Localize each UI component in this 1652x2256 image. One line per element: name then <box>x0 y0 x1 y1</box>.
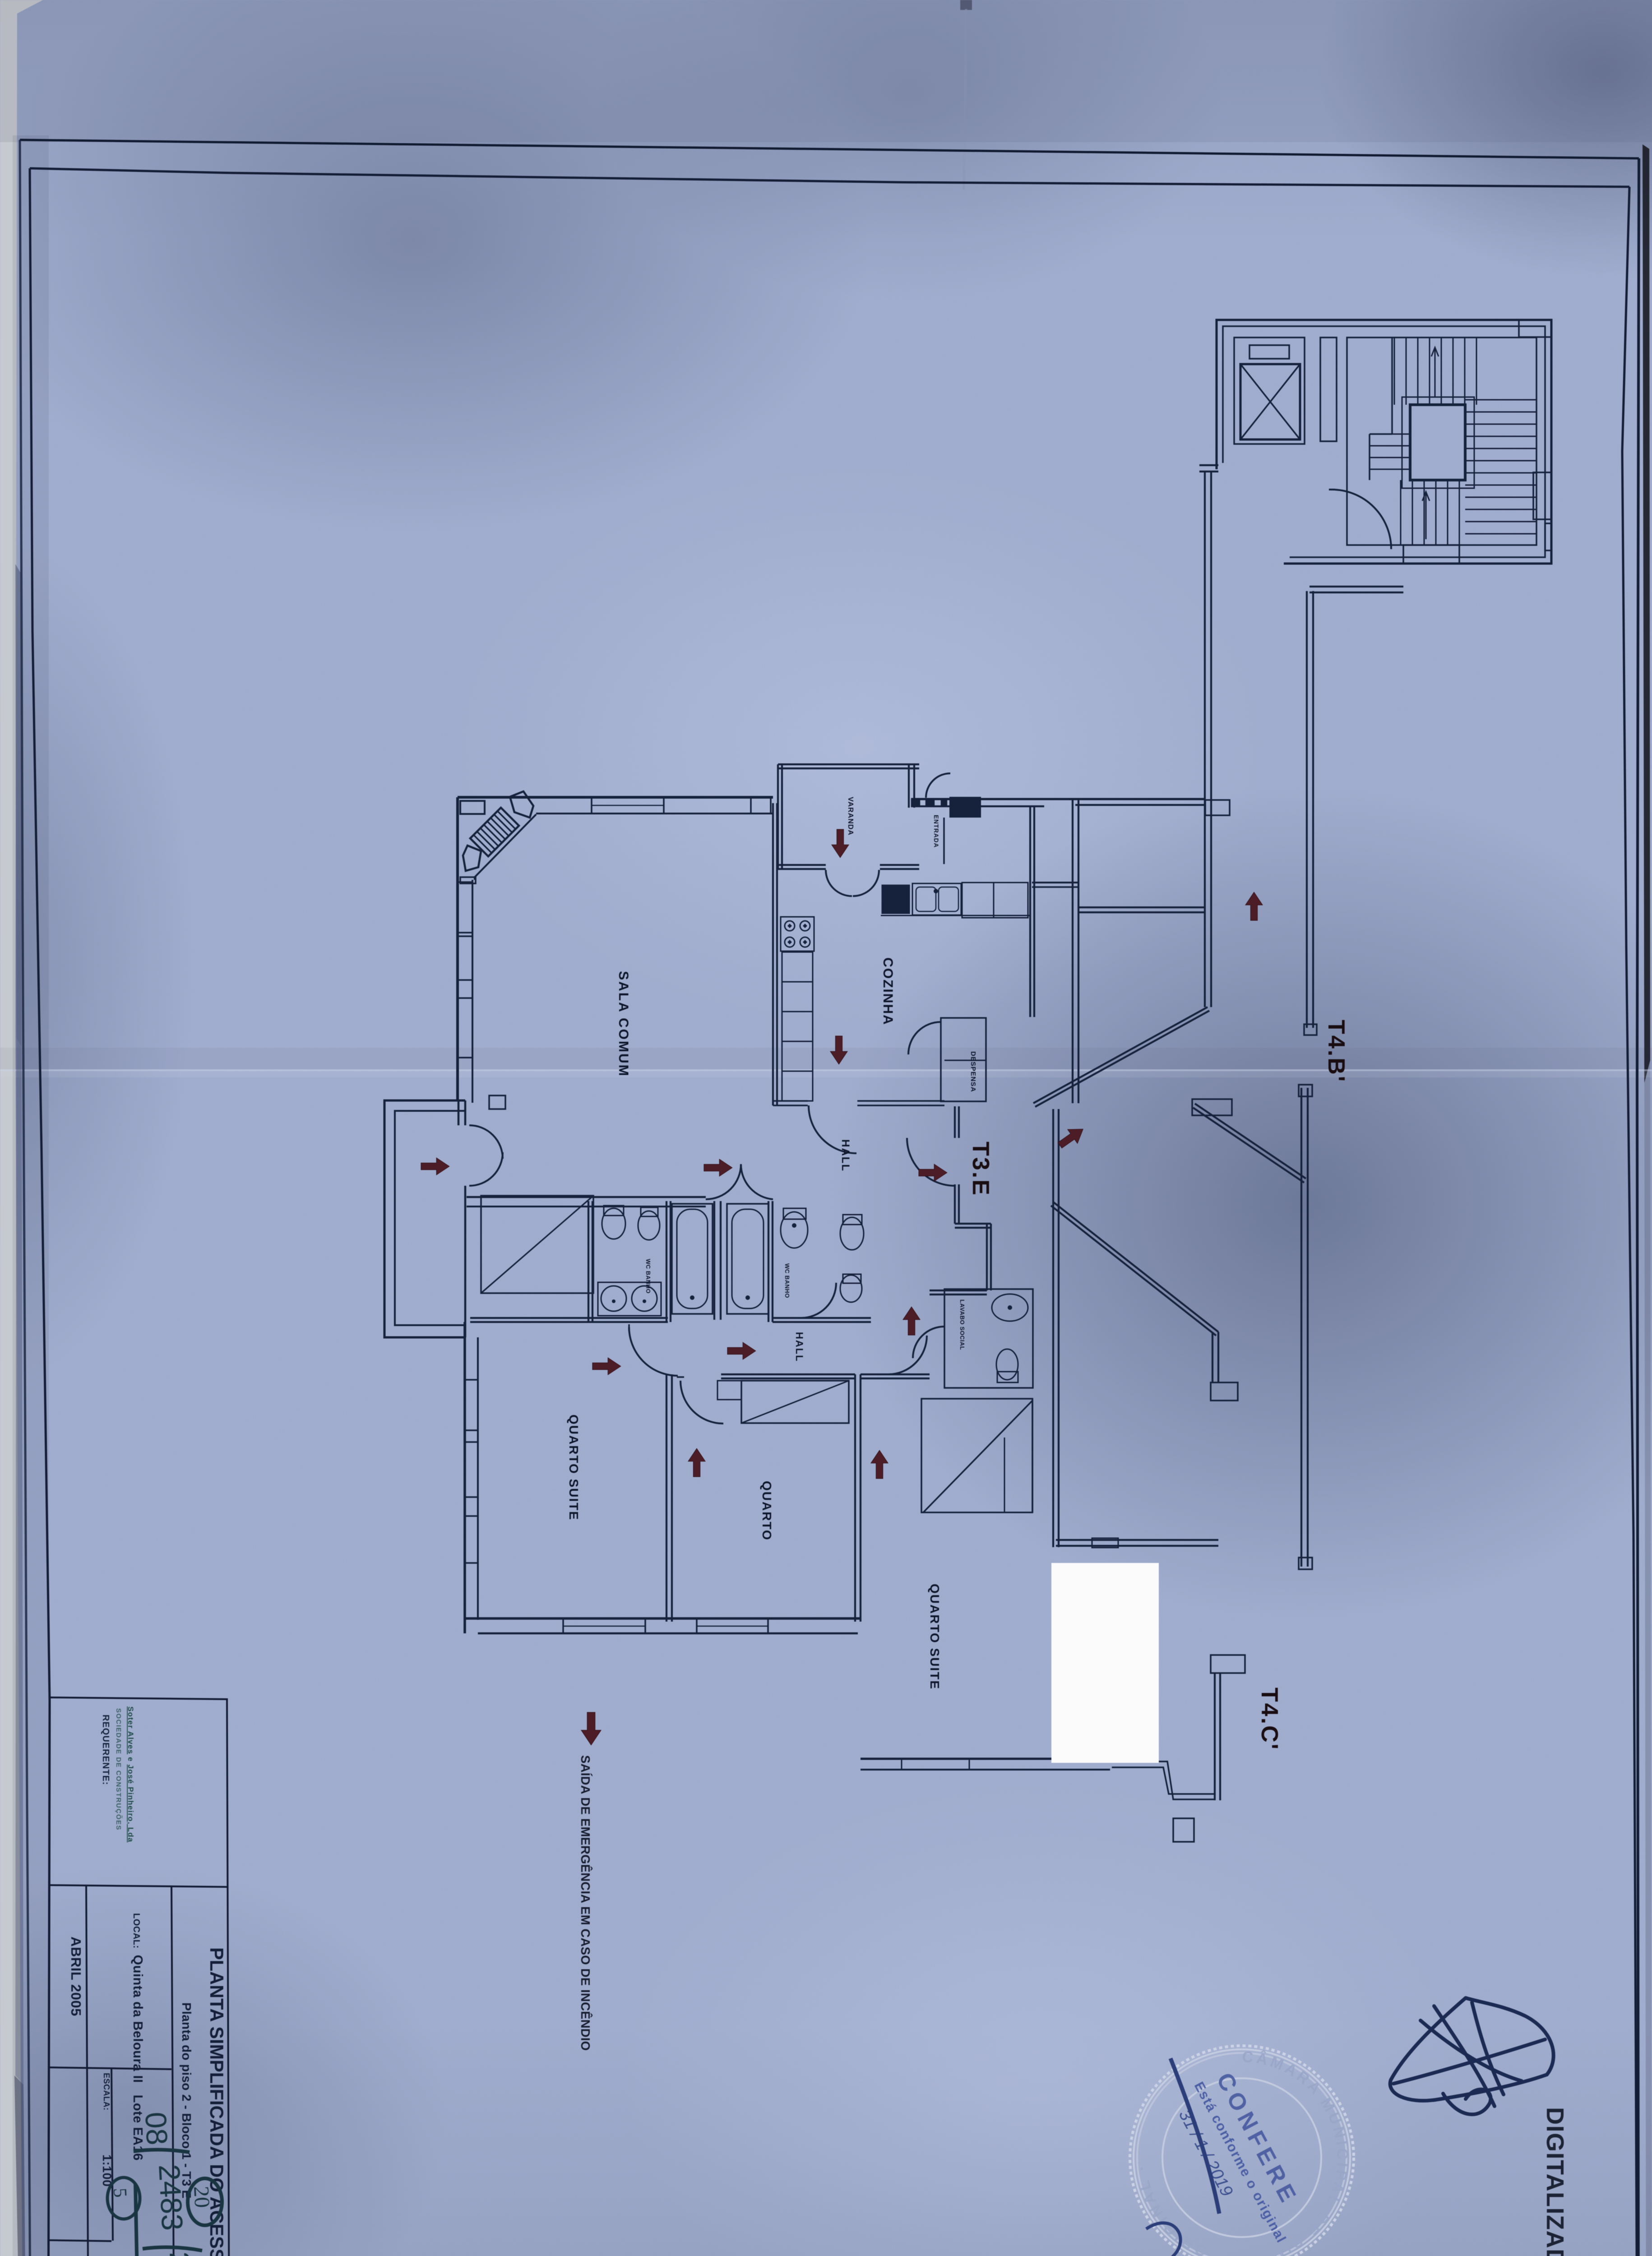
svg-text:PLANTA SIMPLIFICADA DO ACESSO: PLANTA SIMPLIFICADA DO ACESSO AO FOGO <box>206 1947 227 2256</box>
svg-text:20: 20 <box>189 2186 214 2209</box>
svg-text:QUARTO SUITE: QUARTO SUITE <box>567 1415 581 1521</box>
svg-text:DIGITALIZADO: DIGITALIZADO <box>1541 2107 1569 2256</box>
svg-text:2483: 2483 <box>153 2164 190 2231</box>
svg-text:SALA COMUM: SALA COMUM <box>616 971 631 1077</box>
svg-text:LAVABO SOCIAL: LAVABO SOCIAL <box>959 1299 966 1350</box>
svg-text:5: 5 <box>109 2187 130 2198</box>
svg-text:T4.B': T4.B' <box>1323 1020 1349 1083</box>
svg-text:T3.E: T3.E <box>967 1142 994 1197</box>
svg-text:REQUERENTE:: REQUERENTE: <box>101 1715 111 1785</box>
svg-text:T4.C': T4.C' <box>1256 1687 1282 1751</box>
svg-text:QUARTO: QUARTO <box>760 1481 774 1541</box>
svg-text:HALL: HALL <box>794 1332 805 1362</box>
svg-text:ENTRADA: ENTRADA <box>933 815 939 848</box>
svg-text:QUARTO SUITE: QUARTO SUITE <box>928 1584 942 1690</box>
svg-text:WC BANHO: WC BANHO <box>645 1259 652 1294</box>
svg-text:HALL: HALL <box>839 1139 851 1172</box>
svg-text:DESPENSA: DESPENSA <box>969 1051 977 1092</box>
svg-text:COZINHA: COZINHA <box>880 957 895 1026</box>
svg-text:ABRIL 2005: ABRIL 2005 <box>68 1937 84 2016</box>
svg-text:Soter Alves e José Pinheiro, L: Soter Alves e José Pinheiro, Lda <box>126 1706 135 1842</box>
svg-text:ESCALA:: ESCALA: <box>102 2073 111 2111</box>
svg-text:VARANDA: VARANDA <box>847 797 854 836</box>
svg-text:SOCIEDADE DE CONSTRUÇÕES: SOCIEDADE DE CONSTRUÇÕES <box>115 1708 123 1831</box>
svg-text:SAÍDA DE EMERGÊNCIA EM CASO DE: SAÍDA DE EMERGÊNCIA EM CASO DE INCÊNDIO <box>578 1755 592 2051</box>
svg-text:08: 08 <box>139 2111 174 2146</box>
svg-text:WC BANHO: WC BANHO <box>784 1263 791 1298</box>
